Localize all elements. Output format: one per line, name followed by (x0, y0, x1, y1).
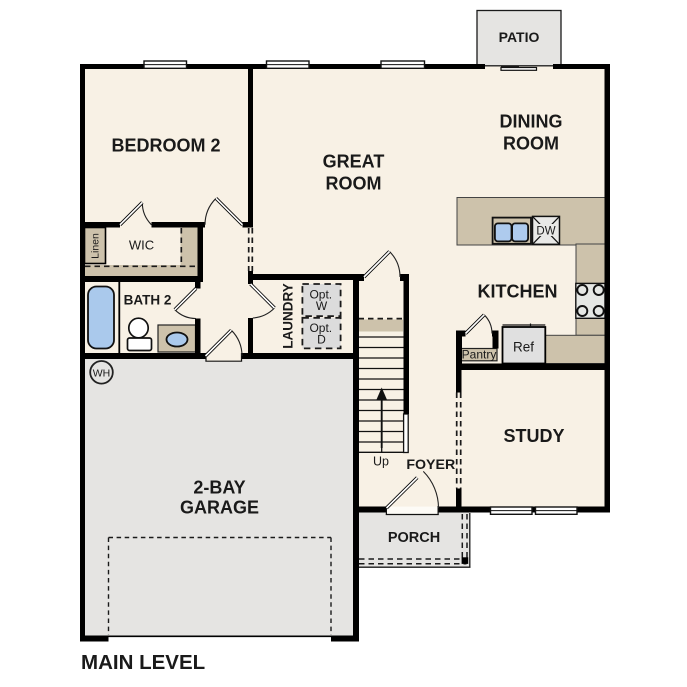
svg-text:GREAT: GREAT (323, 152, 385, 172)
svg-text:WIC: WIC (129, 237, 154, 252)
svg-text:BEDROOM 2: BEDROOM 2 (111, 136, 220, 156)
svg-text:KITCHEN: KITCHEN (478, 282, 558, 302)
svg-text:STUDY: STUDY (503, 426, 564, 446)
svg-text:Pantry: Pantry (462, 347, 497, 361)
svg-text:DINING: DINING (500, 111, 563, 131)
svg-text:GARAGE: GARAGE (180, 498, 259, 518)
svg-text:W: W (316, 299, 328, 313)
svg-text:LAUNDRY: LAUNDRY (281, 283, 296, 349)
svg-text:Up: Up (373, 455, 389, 469)
svg-text:PORCH: PORCH (388, 530, 440, 546)
svg-text:Linen: Linen (89, 233, 101, 259)
svg-text:Ref: Ref (513, 340, 534, 355)
svg-text:ROOM: ROOM (326, 174, 382, 194)
svg-text:FOYER: FOYER (406, 457, 455, 473)
svg-text:D: D (317, 333, 326, 347)
svg-text:ROOM: ROOM (503, 134, 559, 154)
svg-text:2-BAY: 2-BAY (193, 478, 245, 498)
svg-text:DW: DW (536, 225, 555, 237)
svg-text:BATH 2: BATH 2 (124, 293, 172, 308)
svg-text:MAIN LEVEL: MAIN LEVEL (81, 651, 205, 674)
svg-text:WH: WH (93, 367, 111, 379)
svg-text:PATIO: PATIO (499, 29, 540, 45)
